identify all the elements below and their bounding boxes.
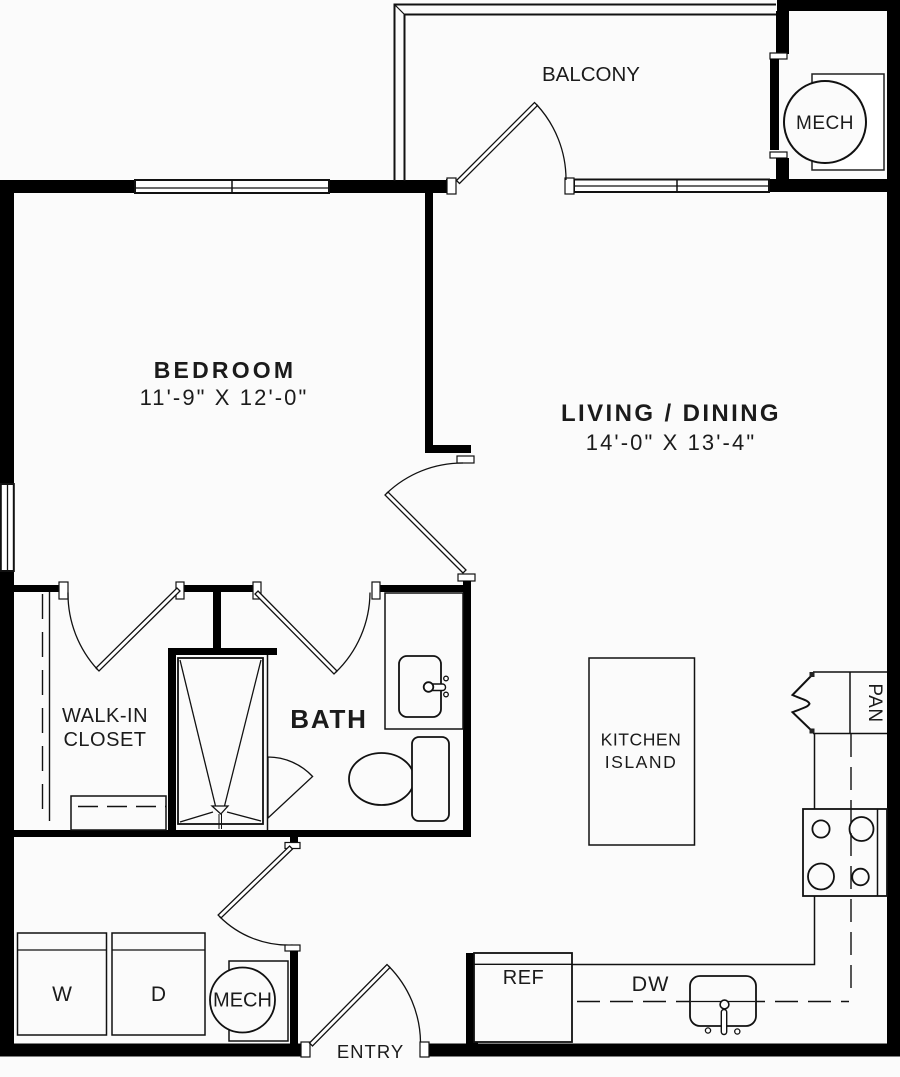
svg-text:BALCONY: BALCONY — [542, 63, 640, 86]
svg-text:14'-0" X 13'-4": 14'-0" X 13'-4" — [586, 430, 756, 455]
svg-text:REF: REF — [503, 967, 545, 989]
svg-text:DW: DW — [632, 972, 670, 996]
svg-text:WALK-IN: WALK-IN — [62, 705, 148, 727]
svg-text:D: D — [151, 983, 166, 1006]
svg-text:CLOSET: CLOSET — [63, 729, 146, 751]
svg-text:11'-9" X 12'-0": 11'-9" X 12'-0" — [140, 385, 309, 410]
svg-text:PAN: PAN — [864, 683, 885, 722]
svg-text:MECH: MECH — [213, 990, 272, 1012]
svg-text:LIVING / DINING: LIVING / DINING — [561, 400, 781, 427]
svg-text:BEDROOM: BEDROOM — [154, 357, 297, 383]
svg-text:KITCHEN: KITCHEN — [601, 730, 682, 750]
svg-text:MECH: MECH — [796, 113, 854, 134]
svg-text:ISLAND: ISLAND — [605, 752, 678, 772]
svg-text:ENTRY: ENTRY — [337, 1041, 404, 1062]
svg-text:W: W — [52, 983, 72, 1006]
svg-text:BATH: BATH — [290, 704, 367, 734]
